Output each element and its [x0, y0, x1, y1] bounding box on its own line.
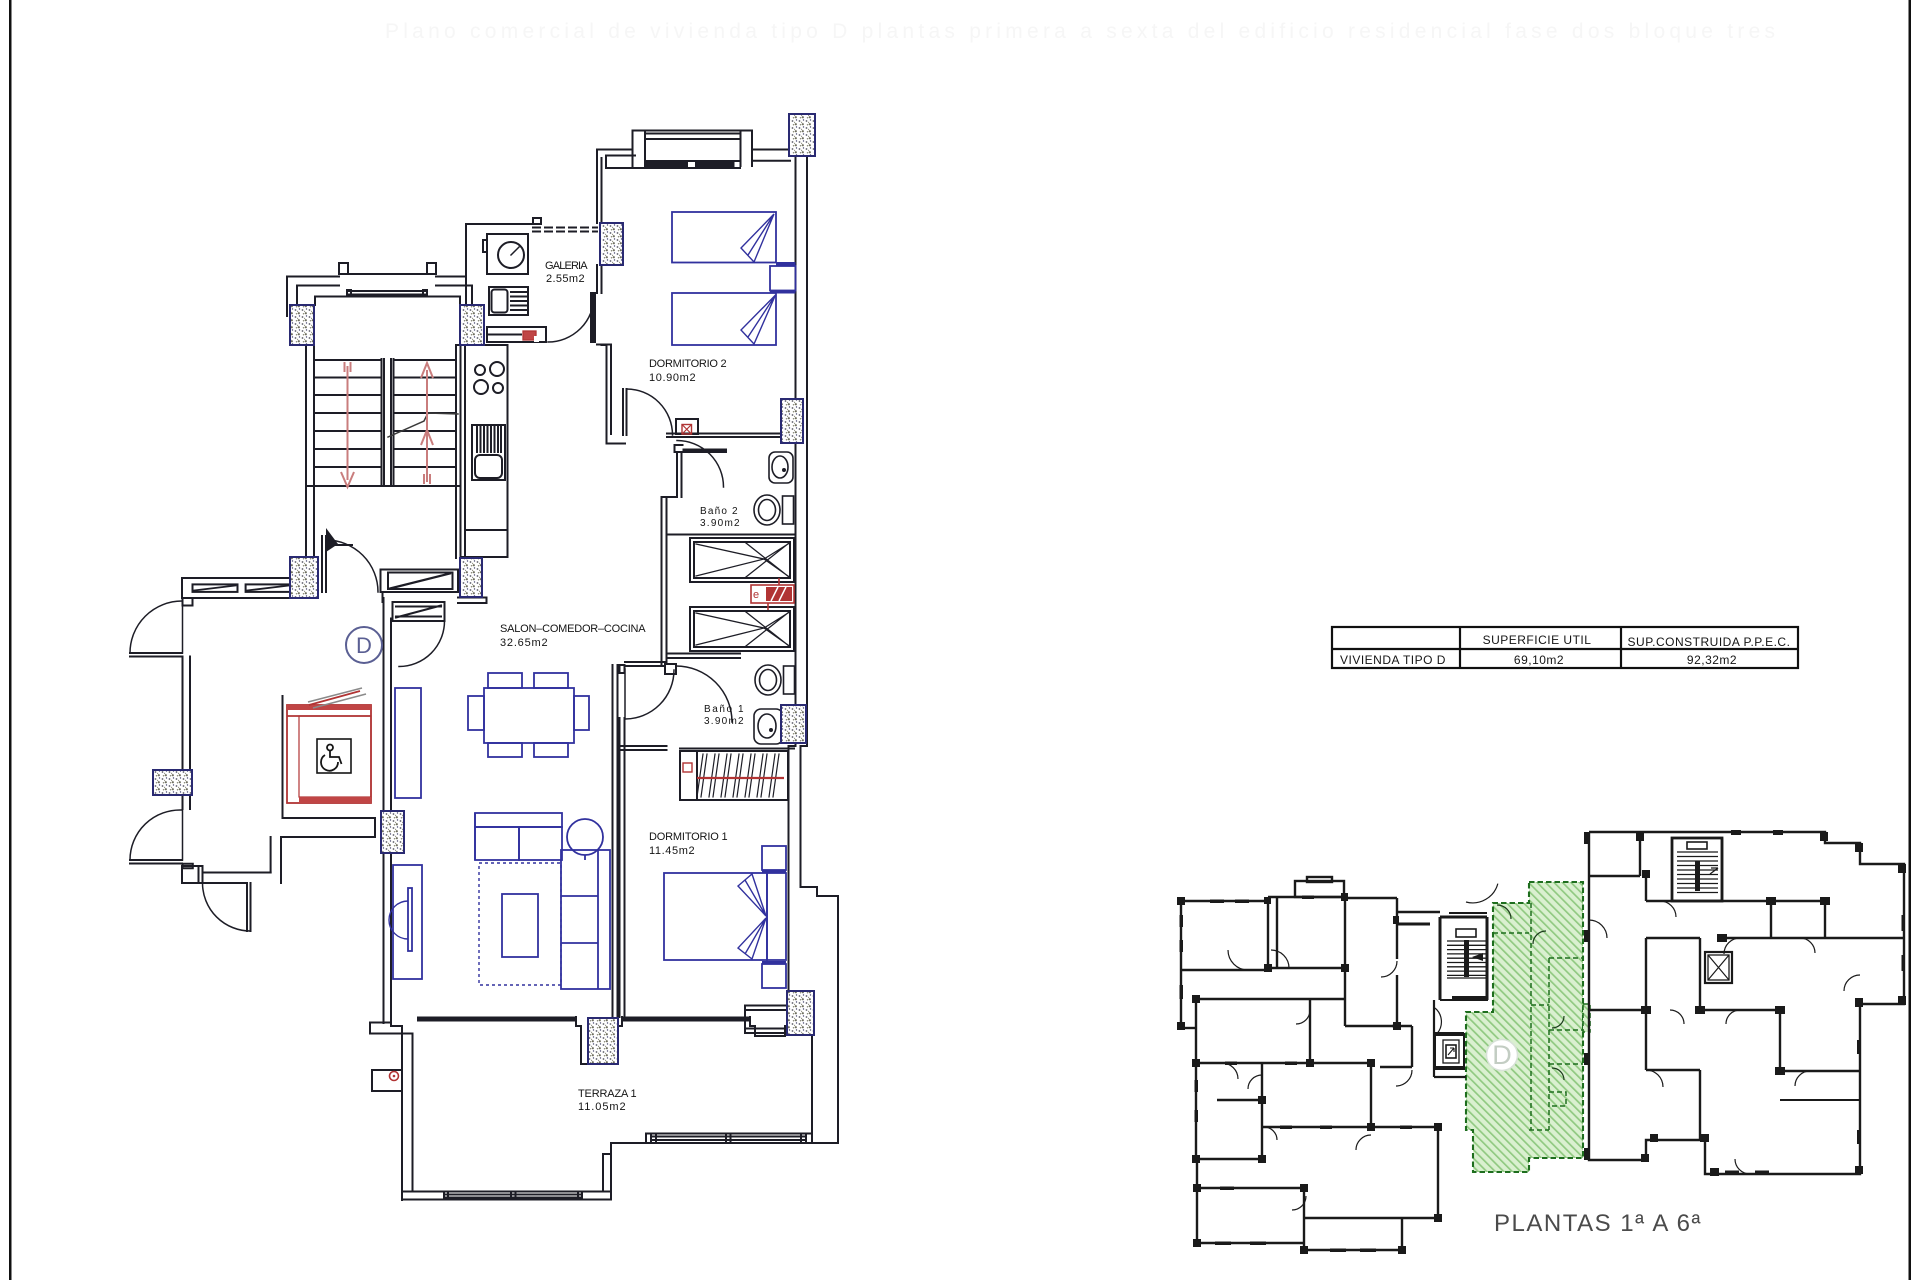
svg-text:VIVIENDA TIPO D: VIVIENDA TIPO D — [1340, 653, 1446, 667]
svg-text:SUPERFICIE UTIL: SUPERFICIE UTIL — [1483, 633, 1592, 647]
svg-text:3.90m2: 3.90m2 — [704, 716, 744, 727]
svg-text:92,32m2: 92,32m2 — [1687, 653, 1737, 667]
svg-text:3.90m2: 3.90m2 — [700, 518, 740, 529]
svg-text:DORMITORIO 1: DORMITORIO 1 — [649, 831, 728, 843]
svg-text:32.65m2: 32.65m2 — [500, 637, 548, 649]
svg-text:GALERIA: GALERIA — [545, 260, 588, 272]
svg-text:PLANTAS 1ª A 6ª: PLANTAS 1ª A 6ª — [1494, 1210, 1702, 1237]
svg-text:Baño 1: Baño 1 — [704, 704, 744, 715]
svg-text:11.45m2: 11.45m2 — [649, 845, 695, 857]
svg-text:SUP.CONSTRUIDA P.P.E.C.: SUP.CONSTRUIDA P.P.E.C. — [1628, 635, 1791, 649]
svg-text:11.05m2: 11.05m2 — [578, 1101, 626, 1113]
svg-text:10.90m2: 10.90m2 — [649, 372, 696, 384]
svg-text:D: D — [356, 633, 372, 658]
svg-text:D: D — [1492, 1040, 1512, 1070]
svg-text:SALON–COMEDOR–COCINA: SALON–COMEDOR–COCINA — [500, 623, 646, 635]
svg-text:DORMITORIO 2: DORMITORIO 2 — [649, 358, 727, 370]
svg-text:69,10m2: 69,10m2 — [1514, 653, 1564, 667]
svg-text:Plano comercial de vivienda ti: Plano comercial de vivienda tipo D plant… — [385, 20, 1775, 43]
svg-text:TERRAZA 1: TERRAZA 1 — [578, 1088, 637, 1100]
svg-text:Baño 2: Baño 2 — [700, 506, 738, 517]
svg-text:e: e — [753, 589, 759, 601]
svg-text:2.55m2: 2.55m2 — [546, 273, 585, 285]
